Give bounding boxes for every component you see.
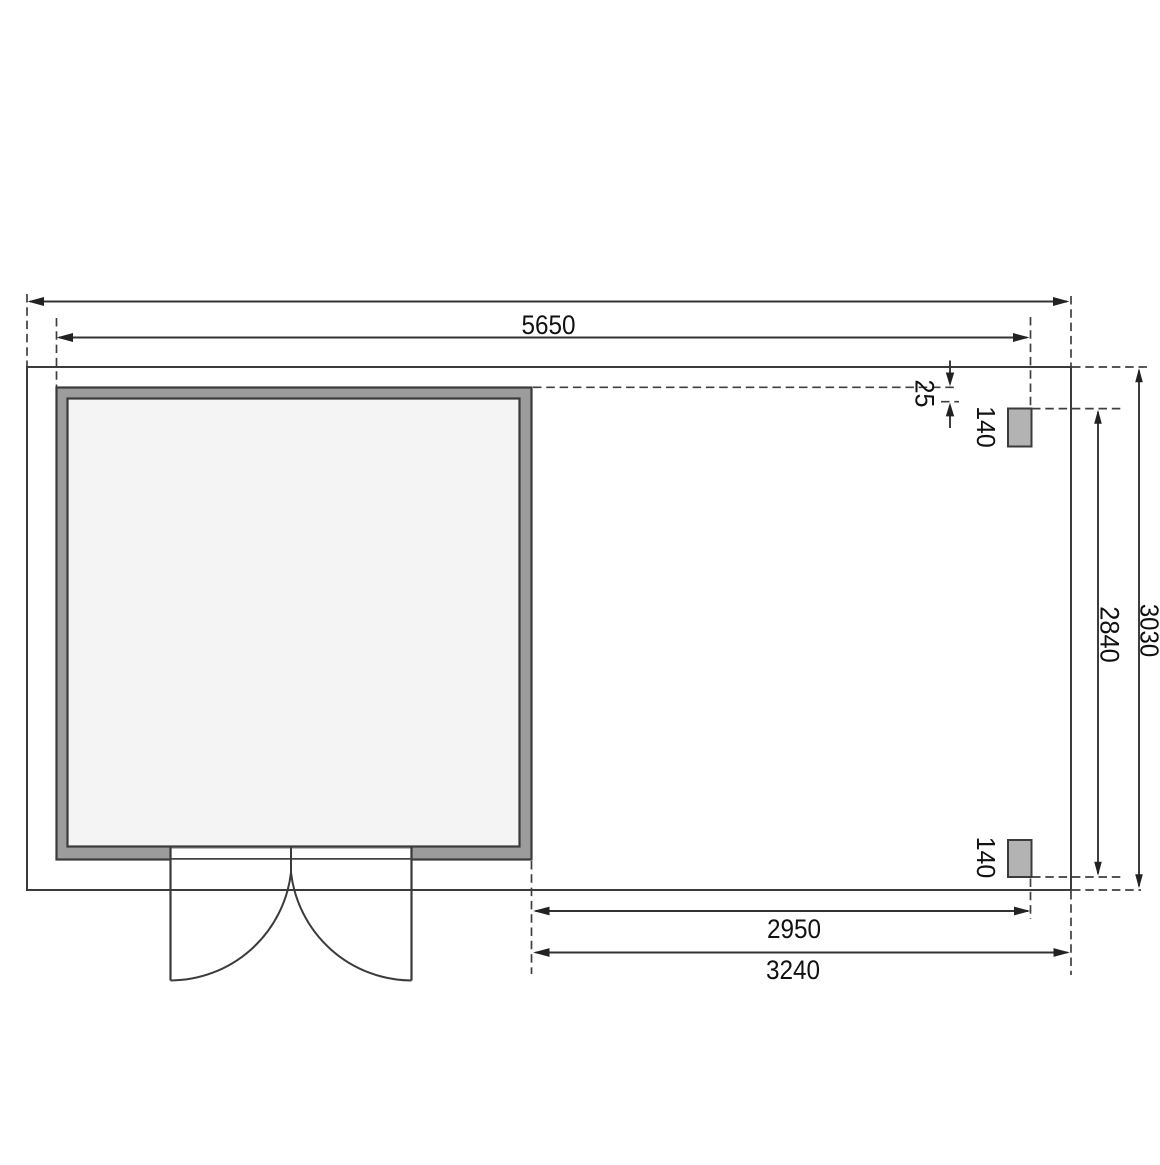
svg-text:3240: 3240 <box>766 956 820 985</box>
svg-text:140: 140 <box>971 837 1000 879</box>
svg-text:140: 140 <box>971 406 1000 448</box>
svg-text:2840: 2840 <box>1094 606 1125 662</box>
svg-text:2950: 2950 <box>767 915 821 944</box>
svg-text:25: 25 <box>909 380 938 408</box>
svg-text:5650: 5650 <box>521 311 575 340</box>
svg-text:3030: 3030 <box>1134 604 1160 657</box>
